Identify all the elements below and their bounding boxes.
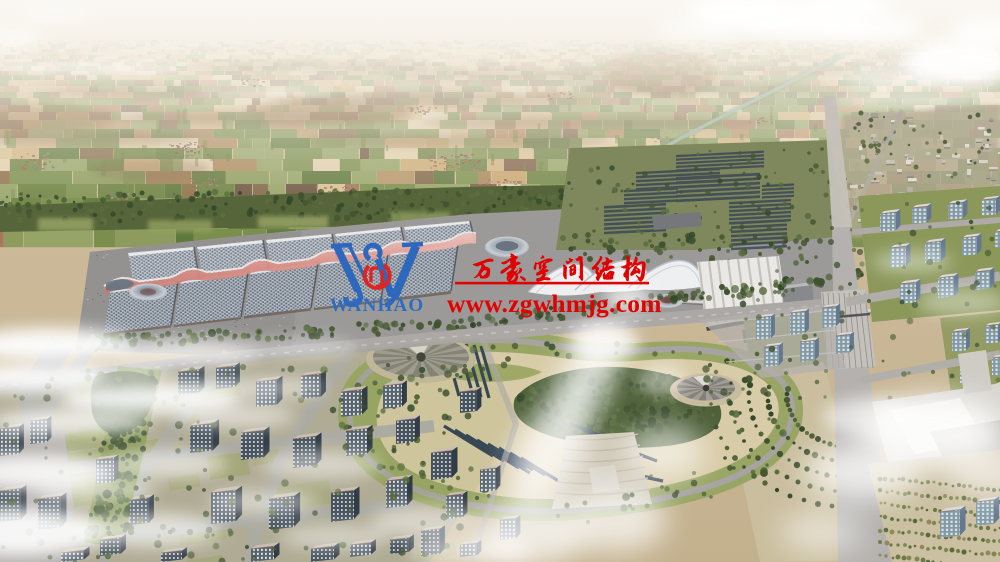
svg-text:WANHAO: WANHAO — [330, 295, 425, 316]
svg-text:www.zgwhmjg.com: www.zgwhmjg.com — [447, 290, 662, 318]
